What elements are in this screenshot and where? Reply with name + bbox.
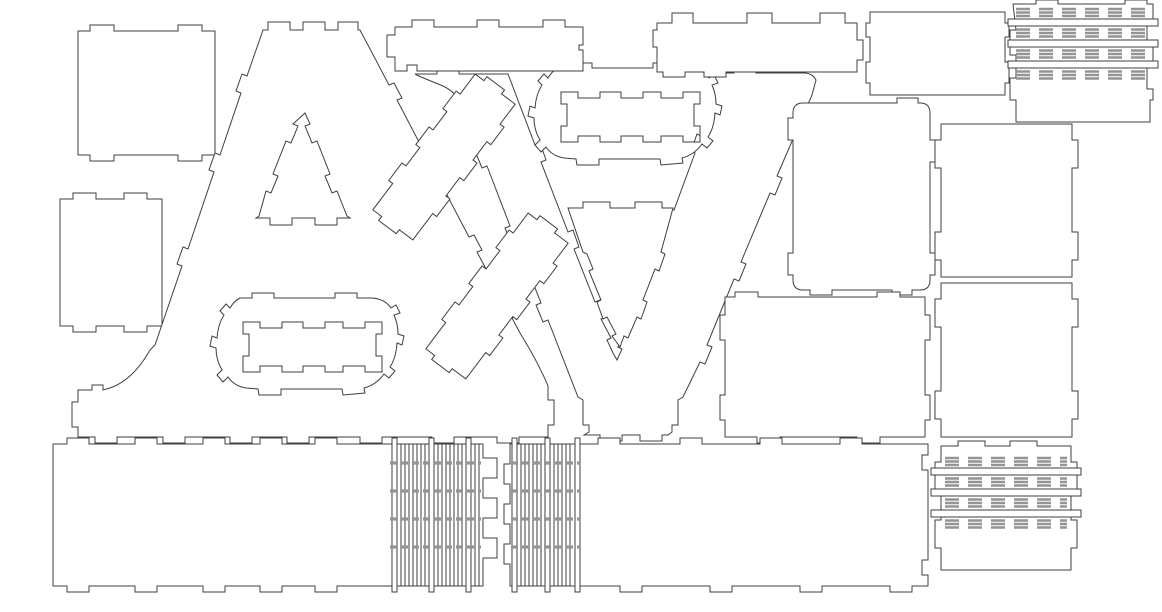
hinge-panel-top-right: [1008, 0, 1158, 122]
comb-strips-bottom-mid: [511, 438, 580, 592]
panel-rect-top-center-a: [387, 20, 583, 71]
panel-square-top-left: [78, 25, 215, 161]
panel-rect-mid-right: [720, 292, 930, 443]
letter-v-counter-stadium: [528, 63, 722, 165]
panel-bottom-right-long: [504, 438, 928, 592]
panel-square-right-2: [935, 283, 1078, 437]
panel-square-right-1: [935, 124, 1078, 277]
panel-rect-top-center-v: [653, 13, 863, 77]
panel-rounded-right-of-v: [788, 98, 935, 295]
hinge-panel-bottom-right: [931, 441, 1081, 570]
panel-rect-top-right: [866, 12, 1009, 95]
panel-rect-left: [60, 193, 162, 332]
laser-cut-sheet-canvas: [0, 0, 1162, 612]
